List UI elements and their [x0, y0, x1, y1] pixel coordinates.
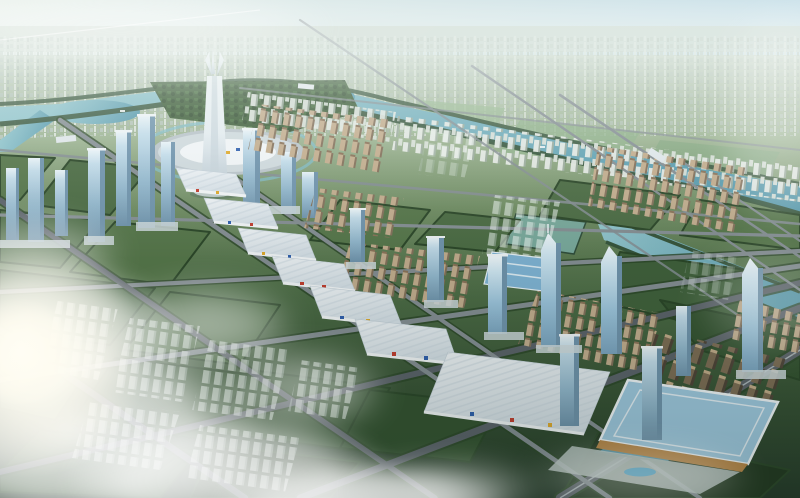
aerial-masterplan-rendering	[0, 0, 800, 498]
scene-canvas	[0, 0, 800, 498]
